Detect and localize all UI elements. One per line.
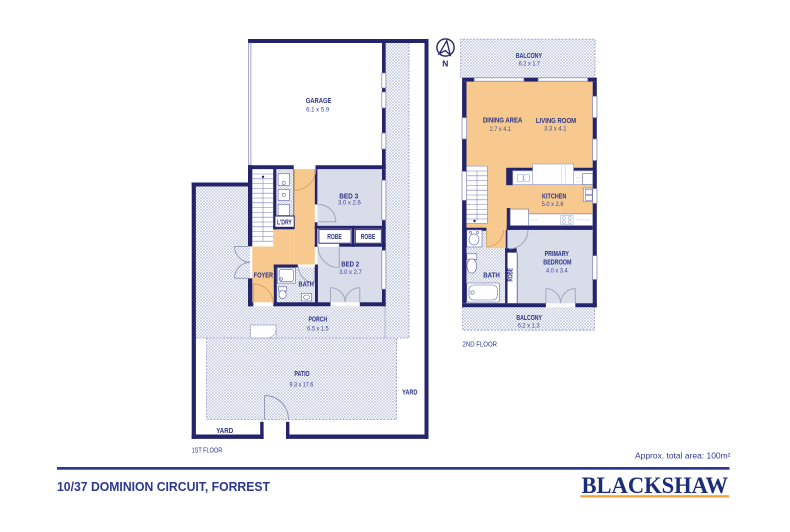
svg-text:2ND FLOOR: 2ND FLOOR bbox=[463, 340, 498, 349]
svg-text:9.3 x 17.6: 9.3 x 17.6 bbox=[289, 382, 313, 389]
svg-text:YARD: YARD bbox=[216, 426, 234, 435]
svg-text:BALCONY: BALCONY bbox=[516, 51, 542, 60]
svg-text:L'DRY: L'DRY bbox=[277, 217, 292, 226]
svg-text:BLACKSHAW: BLACKSHAW bbox=[582, 473, 729, 498]
svg-text:Approx. total area: 100m²: Approx. total area: 100m² bbox=[635, 452, 731, 461]
svg-text:DINING AREA: DINING AREA bbox=[483, 116, 523, 125]
svg-text:BED 2: BED 2 bbox=[341, 259, 359, 268]
svg-text:BEDROOM: BEDROOM bbox=[543, 258, 571, 267]
svg-text:FOYER: FOYER bbox=[254, 271, 274, 280]
svg-text:1ST FLOOR: 1ST FLOOR bbox=[192, 445, 223, 454]
svg-text:4.0 x 3.4: 4.0 x 3.4 bbox=[546, 268, 568, 275]
svg-text:YARD: YARD bbox=[402, 388, 418, 397]
svg-text:3.0 x 2.6: 3.0 x 2.6 bbox=[338, 199, 361, 206]
svg-text:BATH: BATH bbox=[483, 271, 500, 280]
svg-text:6.1 x 5.9: 6.1 x 5.9 bbox=[306, 107, 330, 114]
svg-text:ROBE: ROBE bbox=[505, 268, 514, 282]
svg-text:GARAGE: GARAGE bbox=[306, 96, 332, 105]
svg-text:N: N bbox=[442, 59, 448, 69]
svg-text:PATIO: PATIO bbox=[294, 369, 309, 378]
svg-text:3.0 x 2.7: 3.0 x 2.7 bbox=[339, 269, 362, 276]
svg-text:5.0 x 2.6: 5.0 x 2.6 bbox=[542, 201, 564, 208]
svg-text:PRIMARY: PRIMARY bbox=[545, 249, 569, 258]
svg-text:BATH: BATH bbox=[299, 280, 314, 289]
svg-text:ROBE: ROBE bbox=[327, 232, 342, 241]
svg-text:6.2 x 1.3: 6.2 x 1.3 bbox=[518, 322, 540, 329]
svg-text:2.7 x 4.1: 2.7 x 4.1 bbox=[490, 126, 512, 133]
svg-text:PORCH: PORCH bbox=[308, 315, 327, 324]
svg-text:BALCONY: BALCONY bbox=[516, 313, 542, 322]
svg-text:KITCHEN: KITCHEN bbox=[542, 192, 566, 201]
svg-text:10/37 DOMINION CIRCUIT, FORRES: 10/37 DOMINION CIRCUIT, FORREST bbox=[57, 479, 270, 494]
svg-text:LIVING ROOM: LIVING ROOM bbox=[536, 116, 576, 125]
svg-text:6.5 x 1.5: 6.5 x 1.5 bbox=[307, 325, 329, 332]
svg-text:6.2 x 1.7: 6.2 x 1.7 bbox=[519, 60, 541, 67]
svg-text:3.3 x 4.1: 3.3 x 4.1 bbox=[544, 125, 567, 132]
svg-text:ROBE: ROBE bbox=[361, 232, 376, 241]
